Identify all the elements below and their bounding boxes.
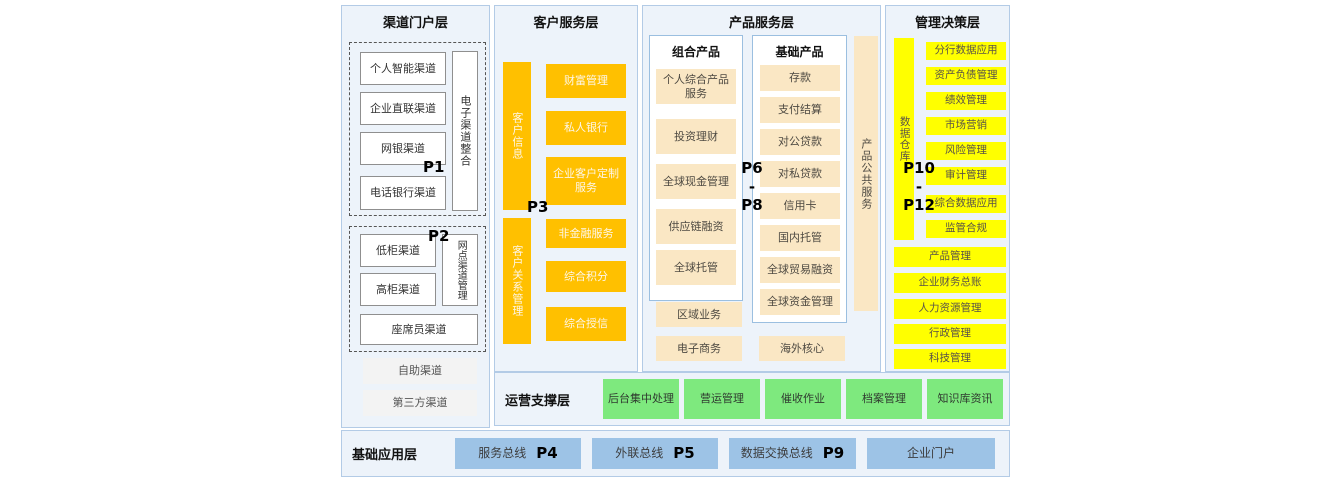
- p12-label: P12: [903, 197, 935, 214]
- product-item: 全球现金管理: [656, 164, 736, 199]
- p6-p8-label: P6 - P8: [740, 160, 764, 214]
- product-item: 全球托管: [656, 250, 736, 285]
- enterprise-portal-box: 企业门户: [867, 438, 995, 469]
- ops-item: 知识库资讯: [927, 379, 1003, 419]
- p2-label: P2: [428, 227, 449, 245]
- customer-service-item: 财富管理: [546, 64, 626, 98]
- channel-item: 个人智能渠道: [360, 52, 446, 85]
- product-item: 个人综合产品服务: [656, 69, 736, 104]
- ops-item: 后台集中处理: [603, 379, 679, 419]
- customer-layer-title: 客户服务层: [494, 12, 638, 31]
- p-range-dash: -: [916, 179, 922, 196]
- product-item: 信用卡: [760, 193, 840, 219]
- product-item: 存款: [760, 65, 840, 91]
- customer-relation-bar: 客户关系管理: [503, 218, 531, 344]
- bus-label: 企业门户: [907, 446, 955, 461]
- product-item: 区域业务: [656, 302, 742, 327]
- product-item: 投资理财: [656, 119, 736, 154]
- management-item: 监管合规: [926, 220, 1006, 238]
- product-item: 支付结算: [760, 97, 840, 123]
- customer-service-item: 综合授信: [546, 307, 626, 341]
- channel-item: 座席员渠道: [360, 314, 478, 345]
- combo-product-header: 组合产品: [649, 43, 743, 60]
- channel-item: 自助渠道: [363, 358, 477, 384]
- ops-item: 催收作业: [765, 379, 841, 419]
- management-item: 综合数据应用: [926, 195, 1006, 213]
- p10-p12-label: P10 - P12: [900, 160, 938, 214]
- management-item: 分行数据应用: [926, 42, 1006, 60]
- base-layer-title: 基础应用层: [352, 430, 417, 477]
- channel-item: 高柜渠道: [360, 273, 436, 306]
- product-item: 电子商务: [656, 336, 742, 361]
- bus-label: 服务总线: [478, 446, 526, 461]
- management-item: 资产负债管理: [926, 67, 1006, 85]
- product-item: 海外核心: [759, 336, 845, 361]
- channel-layer-title: 渠道门户层: [341, 12, 490, 31]
- customer-service-item: 综合积分: [546, 261, 626, 292]
- external-bus-box: 外联总线 P5: [592, 438, 718, 469]
- management-item: 市场营销: [926, 117, 1006, 135]
- customer-service-item: 企业客户定制服务: [546, 157, 626, 205]
- management-item: 企业财务总账: [894, 273, 1006, 293]
- p6-label: P6: [741, 160, 762, 177]
- p8-label: P8: [741, 197, 762, 214]
- e-channel-integration-bar: 电子渠道整合: [452, 51, 478, 211]
- management-item: 风险管理: [926, 142, 1006, 160]
- product-item: 全球资金管理: [760, 289, 840, 315]
- product-item: 对公贷款: [760, 129, 840, 155]
- service-bus-box: 服务总线 P4: [455, 438, 581, 469]
- customer-service-item: 非金融服务: [546, 219, 626, 248]
- management-item: 绩效管理: [926, 92, 1006, 110]
- management-item: 行政管理: [894, 324, 1006, 344]
- product-item: 国内托管: [760, 225, 840, 251]
- product-item: 全球贸易融资: [760, 257, 840, 283]
- product-public-service-bar: 产品公共服务: [854, 36, 878, 311]
- architecture-diagram: 渠道门户层 客户服务层 产品服务层 管理决策层 运营支撑层 基础应用层 个人智能…: [0, 0, 1333, 482]
- management-item: 人力资源管理: [894, 299, 1006, 319]
- product-layer-title: 产品服务层: [642, 12, 881, 31]
- customer-service-item: 私人银行: [546, 111, 626, 145]
- channel-item: 电话银行渠道: [360, 176, 446, 210]
- channel-item: 第三方渠道: [363, 390, 477, 416]
- product-item: 对私贷款: [760, 161, 840, 187]
- data-exchange-bus-box: 数据交换总线 P9: [729, 438, 856, 469]
- ops-item: 营运管理: [684, 379, 760, 419]
- p-range-dash: -: [749, 179, 755, 196]
- management-item: 科技管理: [894, 349, 1006, 369]
- p5-label: P5: [673, 444, 694, 463]
- p1-label: P1: [423, 158, 444, 176]
- customer-info-bar: 客户信息: [503, 62, 531, 210]
- channel-item: 低柜渠道: [360, 234, 436, 267]
- channel-item: 企业直联渠道: [360, 92, 446, 125]
- p9-label: P9: [823, 444, 844, 463]
- p4-label: P4: [536, 444, 557, 463]
- p10-label: P10: [903, 160, 935, 177]
- basic-product-header: 基础产品: [752, 43, 847, 60]
- bus-label: 外联总线: [615, 446, 663, 461]
- management-item: 产品管理: [894, 247, 1006, 267]
- management-layer-title: 管理决策层: [885, 12, 1010, 31]
- ops-layer-title: 运营支撑层: [505, 372, 570, 426]
- management-item: 审计管理: [926, 167, 1006, 185]
- ops-item: 档案管理: [846, 379, 922, 419]
- bus-label: 数据交换总线: [741, 446, 813, 461]
- product-item: 供应链融资: [656, 209, 736, 244]
- p3-label: P3: [527, 198, 548, 216]
